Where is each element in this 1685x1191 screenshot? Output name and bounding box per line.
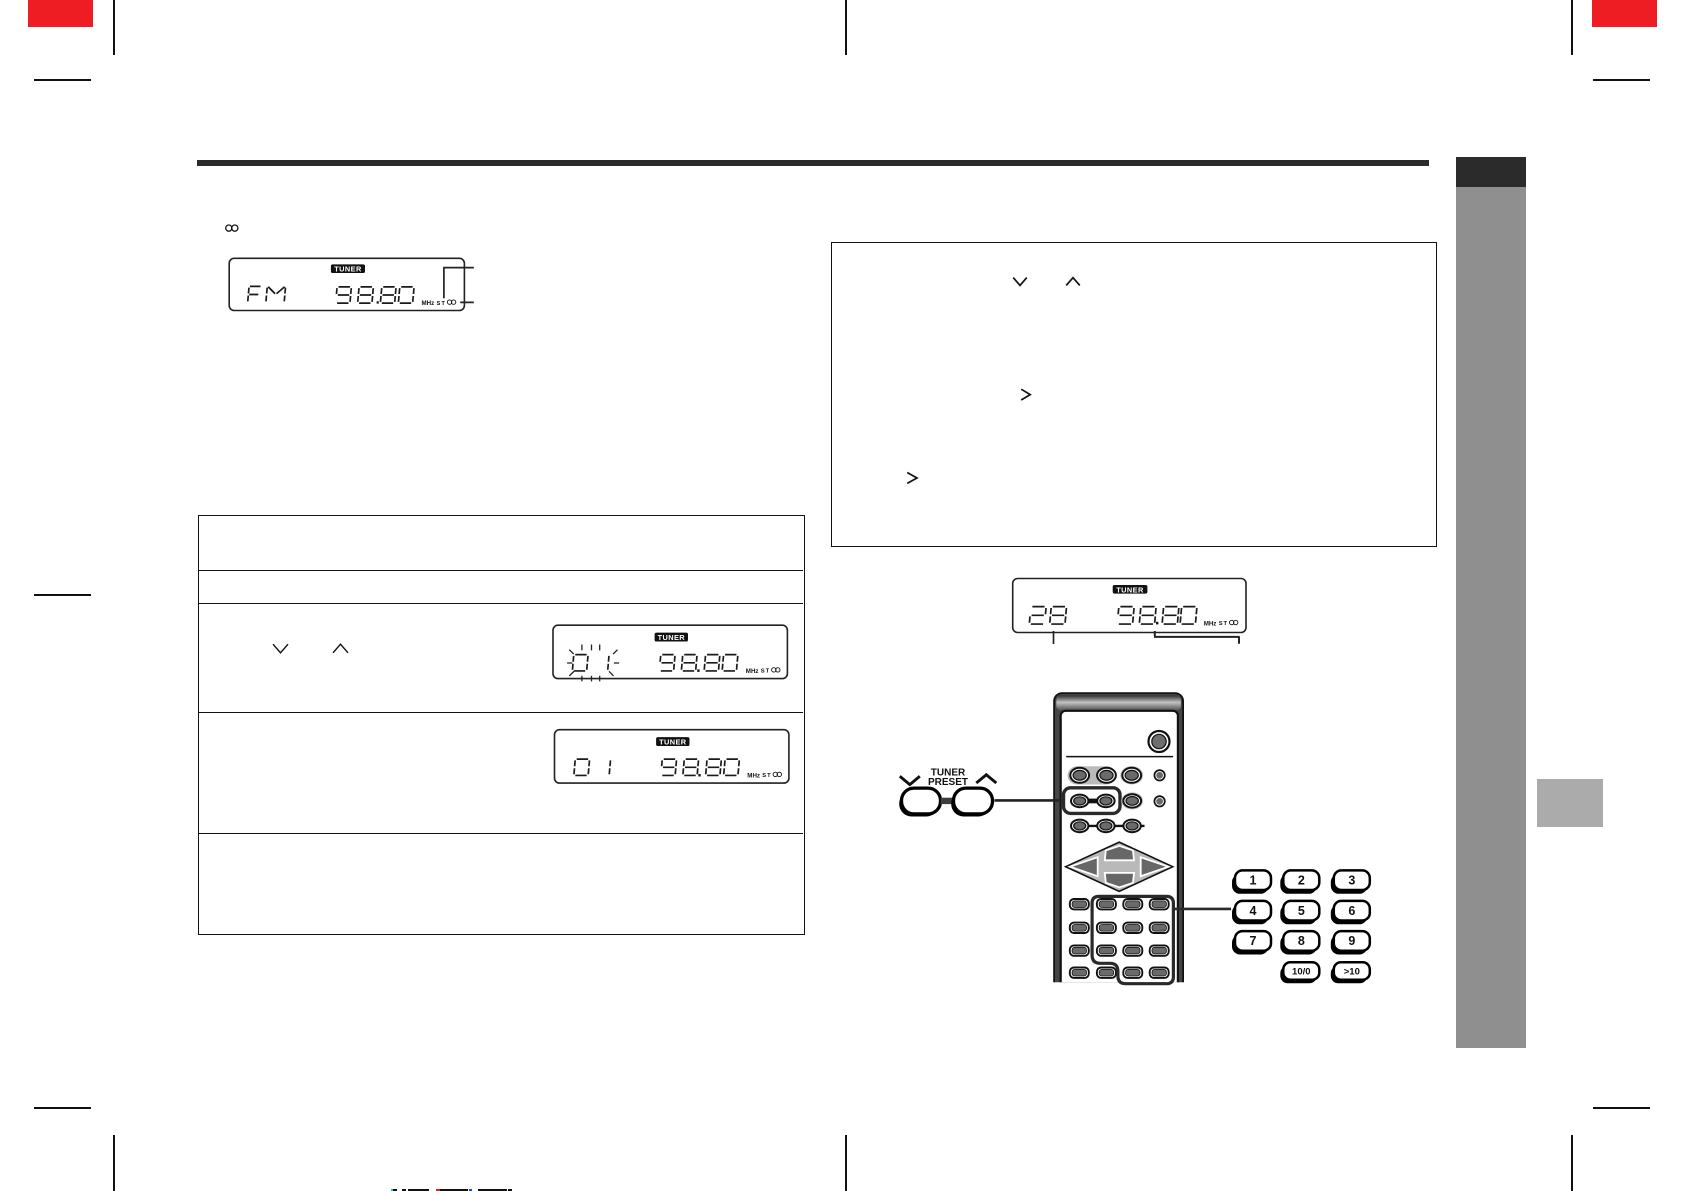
- svg-text:PRESET: PRESET: [928, 777, 968, 788]
- svg-text:5: 5: [1298, 904, 1305, 918]
- svg-text:8: 8: [1298, 934, 1305, 948]
- svg-text:4: 4: [1250, 904, 1257, 918]
- svg-text:6: 6: [1348, 904, 1355, 918]
- svg-text:TUNER: TUNER: [334, 265, 362, 274]
- svg-text:3: 3: [1348, 873, 1355, 887]
- svg-text:TUNER: TUNER: [1116, 585, 1144, 594]
- svg-text:ST: ST: [762, 773, 771, 779]
- svg-text:10/0: 10/0: [1292, 966, 1311, 977]
- svg-text:>10: >10: [1344, 966, 1360, 977]
- svg-text:9: 9: [1348, 934, 1355, 948]
- svg-text:ST: ST: [761, 669, 770, 675]
- svg-text:ST: ST: [437, 301, 446, 307]
- svg-text:MHz: MHz: [1204, 620, 1217, 627]
- svg-text:MHz: MHz: [422, 300, 435, 307]
- svg-text:TUNER: TUNER: [658, 633, 686, 642]
- svg-text:2: 2: [1298, 873, 1305, 887]
- svg-text:ST: ST: [1219, 621, 1228, 627]
- svg-text:MHz: MHz: [747, 772, 760, 779]
- svg-text:7: 7: [1250, 934, 1257, 948]
- svg-text:TUNER: TUNER: [659, 738, 687, 747]
- svg-text:MHz: MHz: [746, 668, 759, 675]
- svg-text:1: 1: [1250, 873, 1257, 887]
